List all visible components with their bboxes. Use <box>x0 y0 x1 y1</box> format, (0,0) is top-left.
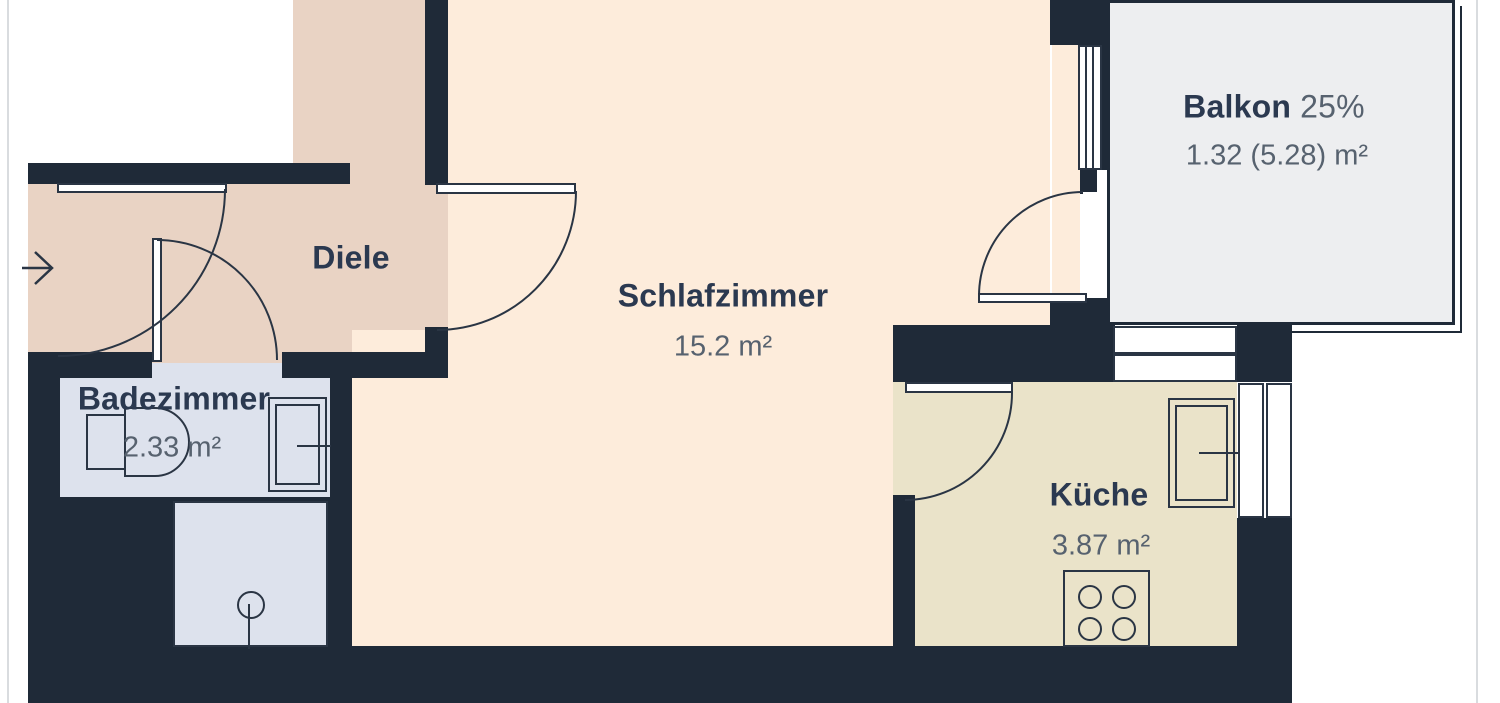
wall <box>28 646 1292 703</box>
wall <box>28 363 60 503</box>
page-edge-line <box>1476 0 1478 703</box>
stove-burner-icon <box>1112 585 1136 609</box>
stove-burner-icon <box>1112 617 1136 641</box>
room-area-balkon: 1.32 (5.28) m² <box>1186 140 1368 173</box>
balcony-wall-niche <box>1052 45 1080 298</box>
door-leaf <box>152 238 162 362</box>
window <box>1113 326 1237 354</box>
page-edge-line <box>7 0 9 703</box>
room-label-kueche: Küche <box>1050 477 1149 514</box>
room-label-balkon-name: Balkon <box>1183 89 1291 125</box>
door-leaf <box>978 293 1087 303</box>
door-leaf <box>436 183 576 194</box>
shower-icon <box>173 501 328 647</box>
room-area-badezimmer: 2.33 m² <box>123 432 221 465</box>
floorplan-canvas: Diele Schlafzimmer 15.2 m² Badezimmer 2.… <box>0 0 1500 703</box>
wall <box>330 378 352 660</box>
sink-icon <box>275 404 320 485</box>
room-area-schlafzimmer: 15.2 m² <box>674 331 772 364</box>
wall <box>1237 325 1292 382</box>
window <box>1113 354 1237 382</box>
sink-icon <box>1175 405 1228 501</box>
wall <box>425 0 448 185</box>
wall <box>1237 518 1292 646</box>
door-leaf <box>905 382 1013 393</box>
balkon-share-percent: 25% <box>1300 89 1365 125</box>
wall <box>282 352 448 378</box>
room-label-balkon: Balkon 25% <box>1183 89 1365 126</box>
wall <box>1080 168 1097 194</box>
room-label-diele: Diele <box>312 240 389 277</box>
room-label-badezimmer: Badezimmer <box>78 381 270 418</box>
window <box>1266 383 1292 518</box>
wall <box>893 495 915 650</box>
window <box>1078 45 1102 170</box>
stove-burner-icon <box>1078 585 1102 609</box>
stove-burner-icon <box>1078 617 1102 641</box>
wall <box>893 325 1115 382</box>
room-label-schlafzimmer: Schlafzimmer <box>618 278 828 315</box>
stove-icon <box>1063 570 1150 647</box>
shower-drain-icon <box>237 591 265 619</box>
wall <box>1050 0 1107 45</box>
toilet-icon <box>86 414 126 470</box>
window <box>1238 383 1264 518</box>
wall <box>28 163 350 184</box>
room-area-kueche: 3.87 m² <box>1052 530 1150 563</box>
doorway <box>1083 192 1107 298</box>
door-leaf <box>57 183 227 193</box>
